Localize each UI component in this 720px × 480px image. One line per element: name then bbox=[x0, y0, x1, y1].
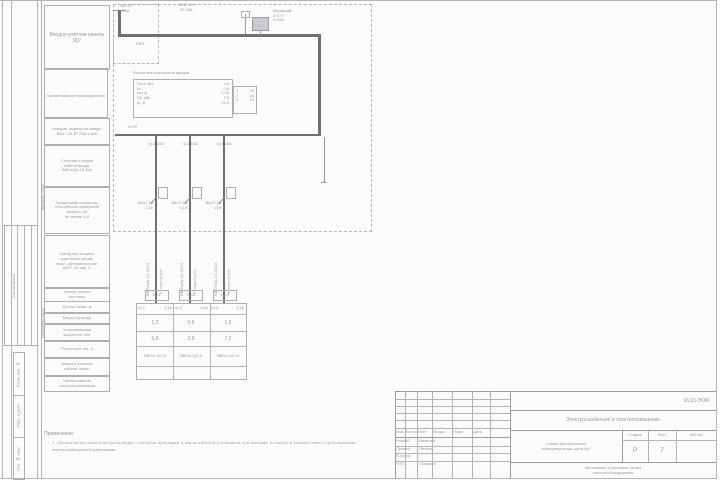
table-header-cell: гр.1С16 bbox=[138, 306, 172, 311]
feeder-data-table: гр.1С16 гр.2С16 гр.3С16 1,2 0,8 1,5 5,8 … bbox=[136, 303, 247, 380]
tb-row-right bbox=[510, 410, 716, 411]
tb-org: Монтажные и пусковые схемы электрооборуд… bbox=[512, 463, 714, 478]
frame-bottom bbox=[0, 478, 717, 479]
feeder-top-label: гр.3 16А bbox=[207, 141, 241, 147]
feeder-top-label: гр.2 16А bbox=[173, 141, 207, 147]
frame-top bbox=[0, 0, 717, 1]
group-id: гр.1 bbox=[138, 306, 145, 311]
cable-cell: ВВГнг 3х2,5 bbox=[210, 346, 246, 366]
tb-divider bbox=[510, 391, 511, 478]
tb-role: Разраб. bbox=[396, 439, 417, 444]
duct-label: в гофротрубе bbox=[159, 246, 164, 294]
tb-row bbox=[395, 413, 510, 414]
tb-role: ГИП bbox=[396, 462, 417, 467]
calc-label: Iр, А bbox=[137, 101, 145, 106]
breaker-symbol-box bbox=[226, 187, 236, 199]
tb-row bbox=[395, 428, 510, 429]
tb-row bbox=[395, 437, 510, 438]
pe-tail-tick bbox=[321, 182, 327, 183]
cable-label: ВВГнг(А)-LS 3х2,5 bbox=[146, 242, 151, 296]
group-box: Гр.3 bbox=[213, 290, 237, 301]
vzam-label: Взам. инв. № bbox=[16, 354, 22, 394]
side-cell: 3 bbox=[236, 98, 238, 103]
panel-name-box: Вводно-учетная панель ЩУ bbox=[44, 5, 110, 70]
tb-col-izm: Изм. bbox=[396, 430, 405, 435]
frame-attr-strip: Взам. инв. № Подп. и дата Инв. № подл. bbox=[13, 352, 25, 480]
left-row-consumers: Наименование электроприемников bbox=[44, 376, 110, 392]
group-id: гр.2 bbox=[175, 306, 182, 311]
calc-row: Iр, А13,4 bbox=[137, 101, 229, 106]
tb-top bbox=[395, 391, 716, 392]
tb-stage-value: 7 bbox=[648, 441, 676, 461]
tb-row bbox=[395, 406, 510, 407]
left-row-connection: Наименование присоединения bbox=[44, 68, 108, 118]
approval-col-line bbox=[24, 226, 25, 345]
breaker-symbol-box bbox=[158, 187, 168, 199]
busbar-bottom bbox=[115, 134, 321, 137]
frame-left-outer bbox=[2, 0, 3, 479]
calc-side-box: 125 216 310 bbox=[233, 86, 257, 114]
inv-label: Инв. № подл. bbox=[16, 438, 22, 478]
tb-stage-value bbox=[676, 441, 716, 461]
tb-title: Схема электрическая принципиальная щита … bbox=[512, 432, 620, 461]
section-label-groups: групповая часть bbox=[41, 238, 45, 338]
podp-label: Подп. и дата bbox=[16, 396, 22, 436]
breaker-label: ВА47-29 С16 bbox=[157, 201, 187, 210]
pen-label: PEN bbox=[136, 42, 144, 47]
breaker-symbol-box bbox=[192, 187, 202, 199]
side-cell: 10 bbox=[250, 98, 254, 103]
tb-name: Петров bbox=[419, 447, 451, 452]
duct-label: в гофротрубе bbox=[193, 246, 198, 294]
tb-stage-label: Лист bbox=[648, 431, 676, 439]
drawing-sheet: Согласовано Взам. инв. № Подп. и дата Ин… bbox=[0, 0, 720, 480]
meter-label: Меркурий 201.5 5-60А bbox=[273, 9, 317, 23]
approval-label: Согласовано bbox=[12, 248, 17, 323]
tb-col-doc: № док. bbox=[433, 430, 452, 435]
group-rating: С16 bbox=[201, 306, 208, 311]
tb-name: Иванова bbox=[419, 439, 451, 444]
feeder-line bbox=[223, 136, 225, 303]
notes-title: Примечание: bbox=[44, 431, 74, 437]
tb-col-podp: Подп. bbox=[453, 430, 472, 435]
tb-col-data: Дата bbox=[473, 430, 490, 435]
tb-col bbox=[490, 391, 491, 478]
group-rating: С16 bbox=[165, 306, 172, 311]
tb-role: Н.контр. bbox=[396, 454, 417, 459]
left-row-input-breaker: Аппарат защиты на вводе: ВА47-29 3Р 25А … bbox=[44, 118, 110, 146]
duct-label: в гофротрубе bbox=[227, 246, 232, 294]
cable-cell: ВВГнг 3х2,5 bbox=[137, 346, 173, 366]
table-header-cell: гр.2С16 bbox=[175, 306, 208, 311]
calc-title: Расчетные показатели вводов: bbox=[133, 71, 190, 76]
left-row-breaking-capacity: Предельная коммутац. способность аппарат… bbox=[44, 186, 110, 234]
pe-tail-wire bbox=[324, 137, 325, 183]
tb-role: Провер. bbox=[396, 447, 417, 452]
left-row-input-cable: Сечение и марка кабеля ввода: ВВГнг(А)-L… bbox=[44, 144, 110, 188]
table-row-line bbox=[137, 366, 246, 367]
tb-stage-label: Стадия bbox=[622, 431, 648, 439]
approval-col-line bbox=[31, 226, 32, 345]
tb-col-koluch: Кол.уч. bbox=[406, 430, 417, 435]
table-header-cell: гр.3С16 bbox=[211, 306, 244, 311]
feeder-line bbox=[189, 136, 191, 303]
power-cell: 1,5 bbox=[210, 314, 246, 331]
notes-line1: 1. Обозначения типов электропроводок, сп… bbox=[52, 441, 374, 446]
frame-right bbox=[716, 0, 717, 479]
title-block: Изм. Кол.уч. Лист № док. Подп. Дата Разр… bbox=[395, 391, 716, 478]
power-cell: 1,2 bbox=[137, 314, 173, 331]
feeder-line bbox=[155, 136, 157, 303]
breaker-label: ВА47-29 С16 bbox=[123, 201, 153, 210]
left-row-cable: Марка и сечение кабеля линии bbox=[44, 357, 110, 376]
tb-row bbox=[395, 399, 510, 400]
meter-test-box bbox=[241, 11, 250, 18]
left-row-group-breakers: Аппараты защиты групповых линий: выкл. а… bbox=[44, 235, 110, 288]
breaker-label: ВА47-29 С16 bbox=[191, 201, 221, 210]
tb-col-list: Лист bbox=[418, 430, 432, 435]
power-cell: 0,8 bbox=[173, 314, 209, 331]
cable-label: ВВГнг(А)-LS 3х2,5 bbox=[180, 242, 185, 296]
approval-table: Согласовано bbox=[4, 225, 38, 346]
tb-designation: Электроснабжение и электроосвещение bbox=[512, 412, 714, 428]
current-cell: 3,9 bbox=[173, 331, 209, 346]
group-rating: С16 bbox=[237, 306, 244, 311]
section-label-input: вводная часть bbox=[41, 122, 45, 210]
calc-side-row: 310 bbox=[236, 98, 254, 103]
cable-cell: ВВГнг 3х2,5 bbox=[173, 346, 209, 366]
tb-doc-code: 16.13-ЭОМ bbox=[635, 398, 709, 404]
tb-name: Смирнов bbox=[419, 462, 451, 467]
feeder-top-label: гр.1 16А bbox=[139, 141, 173, 147]
notes-line2: электроснабжающей организации. bbox=[52, 448, 192, 453]
group-id: гр.3 bbox=[211, 306, 218, 311]
current-cell: 7,2 bbox=[210, 331, 246, 346]
tb-stage-value: Р bbox=[622, 441, 648, 461]
tb-row bbox=[395, 420, 510, 421]
current-cell: 5,8 bbox=[137, 331, 173, 346]
calc-value: 13,4 bbox=[221, 101, 229, 106]
busbar-top bbox=[118, 34, 321, 37]
group-box: Гр.2 bbox=[179, 290, 203, 301]
cable-label: ВВГнг(А)-LS 3х2,5 bbox=[214, 242, 219, 296]
input-switch-symbol bbox=[118, 10, 121, 35]
group-box: Гр.1 bbox=[145, 290, 169, 301]
busbar-drop bbox=[318, 34, 321, 136]
calc-box: Руст, кВт3,5 Кс0,8 cos φ0,95 Рр, кВт2,8 … bbox=[133, 79, 233, 118]
approval-col-line bbox=[17, 226, 18, 345]
left-row-group-number: Номер группы по плану bbox=[44, 288, 110, 302]
npe-label: N PE bbox=[128, 125, 137, 130]
meter-symbol bbox=[252, 17, 269, 31]
main-breaker-label: ВА47-29 3Р 25А bbox=[160, 2, 212, 14]
tb-stage-label: Листов bbox=[676, 431, 716, 439]
